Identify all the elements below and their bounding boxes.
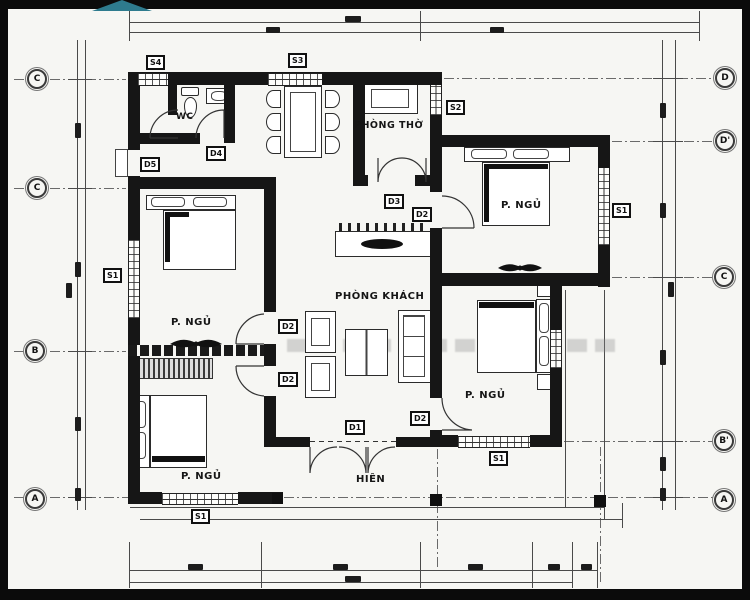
floor-plan-drawing: S4 S3 S2 S1 S1 S1 S1 D5 D4 D3 D2 D2 D2 D… — [0, 0, 750, 600]
door-tag-d2-bottomright: D2 — [410, 411, 430, 426]
door-swing-d2-topright — [442, 196, 474, 228]
door-swing-d3-right — [402, 158, 426, 182]
door-swing-d1-mid — [339, 447, 366, 473]
door-swing-wc — [150, 110, 178, 138]
door-tag-d5: D5 — [140, 157, 160, 172]
door-tag-d2-mid-lower: D2 — [278, 372, 298, 387]
grid-marker-a-right: A — [714, 490, 734, 510]
grid-marker-d-prime-right: D' — [715, 131, 735, 151]
door-swing-d2-mid-upper — [236, 314, 264, 344]
room-label-bedroom-topright: P. NGỦ — [501, 200, 541, 211]
door-swing-d2-bottomright — [442, 398, 472, 430]
grid-marker-b-left: B — [25, 341, 45, 361]
grid-marker-c-right: C — [714, 267, 734, 287]
accent-triangle — [92, 0, 152, 11]
room-label-bedroom-bottomright: P. NGỦ — [465, 390, 505, 401]
door-tag-d1: D1 — [345, 420, 365, 435]
door-swing-d1-left — [310, 447, 337, 473]
room-label-bedroom-midleft: P. NGỦ — [171, 317, 211, 328]
room-label-wc: WC — [176, 112, 194, 122]
frame-bottom — [0, 589, 750, 600]
door-tag-d2-mid-upper: D2 — [278, 319, 298, 334]
grid-marker-a-left: A — [25, 489, 45, 509]
grid-marker-d-right: D — [715, 68, 735, 88]
ceiling-fan-hub — [194, 342, 199, 347]
room-label-bedroom-bottomleft: P. NGỦ — [181, 471, 221, 482]
frame-left — [0, 0, 8, 600]
door-tag-d4: D4 — [206, 146, 226, 161]
door-swing-d2-mid-lower — [236, 366, 264, 396]
door-swing-d3-left — [378, 158, 402, 182]
tv-icon — [361, 239, 403, 249]
window-tag-s2: S2 — [446, 100, 465, 115]
door-swing-d1-right — [368, 447, 395, 473]
room-label-porch: HIÊN — [356, 474, 385, 485]
room-label-living: PHÒNG KHÁCH — [335, 291, 424, 302]
window-tag-s1-bottom-right: S1 — [489, 451, 508, 466]
window-tag-s1-right: S1 — [612, 203, 631, 218]
door-tag-d2-topright: D2 — [412, 207, 432, 222]
window-tag-s1-bottom-left: S1 — [191, 509, 210, 524]
door-tag-d3: D3 — [384, 194, 404, 209]
grid-marker-b-prime-right: B' — [714, 431, 734, 451]
door-swing-d4 — [196, 110, 224, 138]
grid-marker-c-left: C — [27, 178, 47, 198]
frame-right — [742, 0, 750, 600]
window-tag-s4: S4 — [146, 55, 165, 70]
grid-marker-c-left-top: C — [27, 69, 47, 89]
window-tag-s1-left: S1 — [103, 268, 122, 283]
window-tag-s3: S3 — [288, 53, 307, 68]
ceiling-fan-hub — [518, 266, 523, 271]
room-label-worship: PHÒNG THỜ — [354, 120, 423, 131]
